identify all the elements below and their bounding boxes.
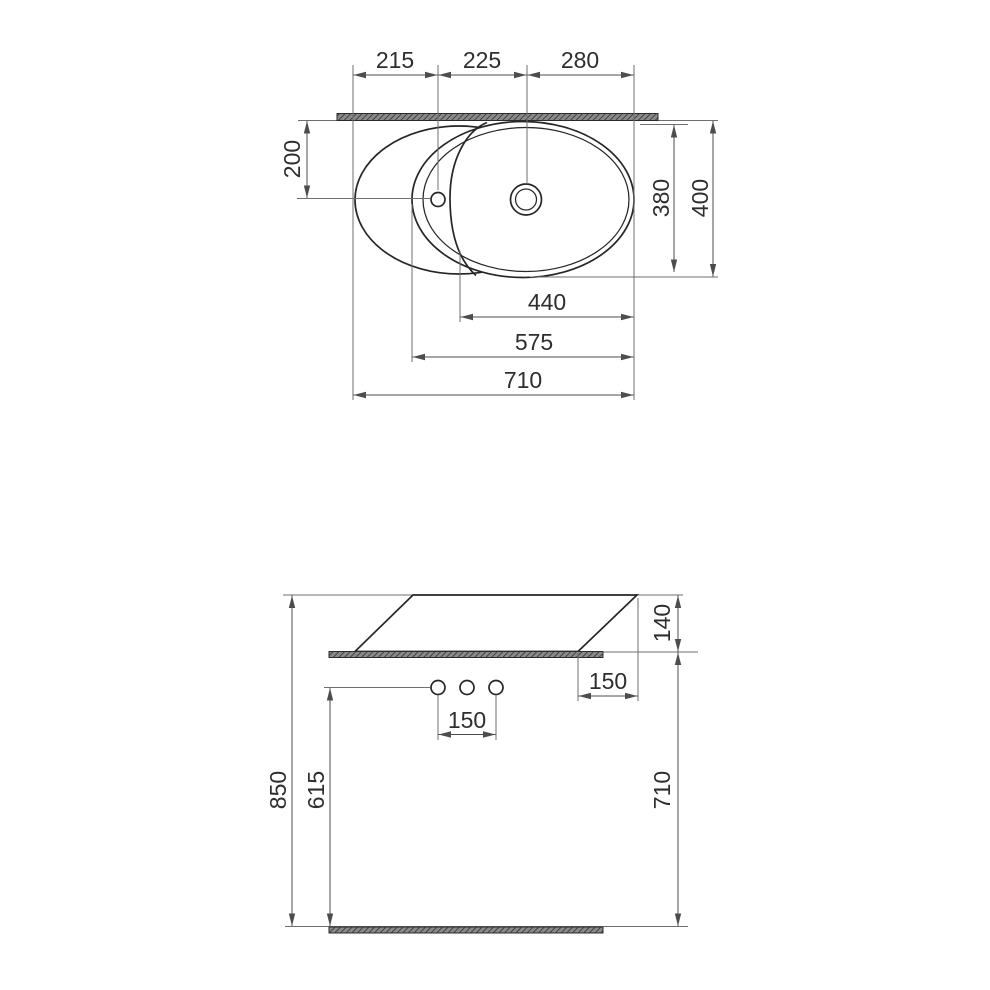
dim-label-225: 225	[463, 47, 501, 73]
dim-label-575: 575	[515, 329, 553, 355]
dim-label-400: 400	[687, 179, 713, 217]
dim-label-200: 200	[279, 140, 305, 178]
faucet-hole-3	[489, 681, 503, 695]
countertop-hatch	[337, 114, 658, 121]
technical-drawing-page: 215 225 280 200 380 400 440 575 710	[0, 0, 990, 990]
floor-hatch	[329, 927, 603, 933]
dim-label-710-front: 710	[649, 771, 675, 809]
dim-label-150-overhang: 150	[589, 668, 627, 694]
dim-label-140: 140	[649, 604, 675, 642]
front-view: 850 615 140 710 150 150	[265, 595, 698, 933]
faucet-hole-1	[431, 681, 445, 695]
dim-label-710: 710	[504, 367, 542, 393]
faucet-hole-2	[460, 681, 474, 695]
dim-label-215: 215	[376, 47, 414, 73]
dim-label-440: 440	[528, 289, 566, 315]
washbasin-technical-drawing: 215 225 280 200 380 400 440 575 710	[0, 0, 990, 990]
dim-label-615: 615	[303, 771, 329, 809]
counter-hatch-front	[329, 652, 603, 658]
dim-label-280: 280	[561, 47, 599, 73]
faucet-hole	[431, 193, 445, 207]
basin-side-silhouette	[355, 595, 637, 652]
dim-label-150-holes: 150	[448, 707, 486, 733]
dim-label-380: 380	[648, 179, 674, 217]
dim-label-850: 850	[265, 771, 291, 809]
top-view: 215 225 280 200 380 400 440 575 710	[279, 47, 718, 400]
